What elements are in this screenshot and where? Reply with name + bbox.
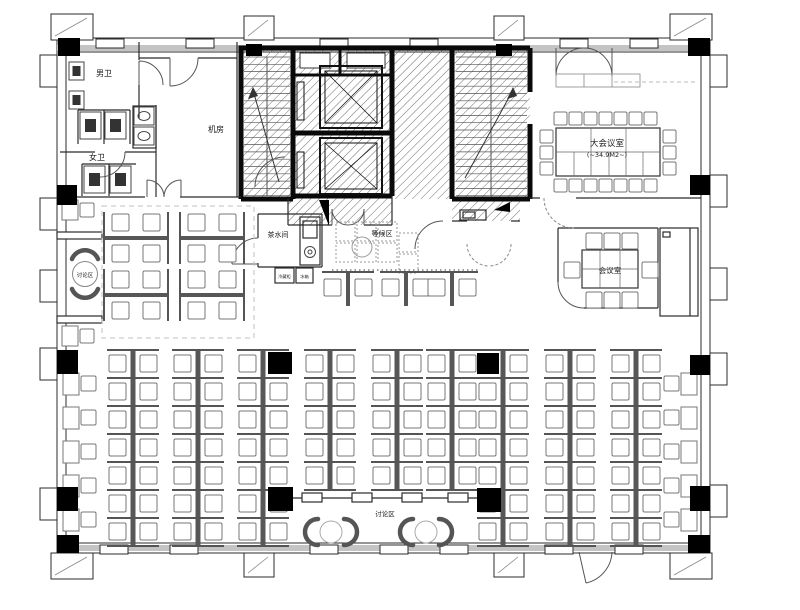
floor-plan-drawing: 男卫 女卫 机房 茶水间 等候区 讨论区 大会议室 (~34.9M2~) 会议室… — [0, 0, 800, 610]
round-table — [320, 521, 342, 543]
label-large-meeting-area: (~34.9M2~) — [587, 151, 627, 159]
door-vestibule-right — [415, 221, 443, 249]
desk-bench — [237, 350, 289, 546]
door-corridor-double-dashed — [467, 244, 511, 266]
column — [57, 350, 78, 374]
fan-chair — [344, 519, 357, 545]
workstation-cluster — [104, 212, 168, 264]
entry-mat — [556, 74, 640, 87]
column — [690, 175, 710, 195]
toilet — [84, 166, 105, 193]
column — [477, 488, 501, 512]
wall-desk — [63, 441, 96, 463]
wall-desk — [63, 373, 96, 395]
column — [268, 487, 293, 511]
column — [477, 353, 499, 374]
core-hatch — [241, 48, 530, 199]
column — [57, 185, 77, 205]
desk-bench-small — [322, 272, 374, 306]
column — [688, 535, 710, 553]
round-table — [415, 521, 437, 543]
fan-chair — [439, 519, 452, 545]
label-large-meeting-room: 大会议室 — [590, 138, 625, 149]
wall-desk — [63, 509, 96, 531]
wall-desk — [664, 509, 697, 531]
desk-bench — [304, 350, 356, 490]
tea-stove — [305, 247, 316, 258]
column — [690, 486, 710, 511]
waiting-round-table — [352, 237, 372, 257]
urinal — [69, 91, 84, 109]
label-meeting-room: 会议室 — [599, 265, 622, 275]
desk-bench — [544, 350, 596, 546]
column — [496, 44, 512, 56]
desk-bench-small — [426, 272, 478, 306]
label-mens-room: 男卫 — [96, 69, 112, 78]
column — [690, 355, 710, 375]
column — [57, 487, 78, 511]
sink — [134, 127, 154, 145]
lounge-bottom-discussion — [305, 519, 452, 545]
door-machine-room-north — [170, 58, 198, 86]
sink — [134, 107, 154, 125]
label-tea-room: 茶水间 — [268, 230, 289, 239]
label-womens-room: 女卫 — [89, 152, 105, 162]
fan-chair — [400, 519, 413, 545]
door-meeting-room — [558, 282, 584, 308]
fan-chair — [72, 289, 98, 298]
label-discussion-bottom: 讨论区 — [375, 509, 395, 518]
column — [268, 352, 292, 374]
wall-desk — [664, 441, 697, 463]
workstation-cluster — [180, 269, 244, 321]
door-exit-south — [579, 552, 612, 583]
label-waiting-area: 等候区 — [372, 229, 393, 238]
toilet — [80, 112, 101, 139]
column — [246, 44, 262, 56]
desk-bench — [172, 350, 224, 546]
toilet — [110, 166, 131, 193]
floor-plan-canvas: 男卫 女卫 机房 茶水间 等候区 讨论区 大会议室 (~34.9M2~) 会议室… — [0, 0, 800, 610]
label-machine-room: 机房 — [208, 124, 224, 134]
label-fridge: 冷藏柜 — [278, 273, 291, 280]
desk-bench — [426, 350, 478, 490]
column — [57, 535, 79, 553]
label-icebox: 冰箱 — [300, 273, 308, 280]
workstation-cluster — [104, 269, 168, 321]
door-large-meeting-dashed — [544, 198, 574, 228]
wall-desk — [62, 326, 94, 346]
desk-bench-small — [380, 272, 432, 306]
desk-bench — [610, 350, 662, 546]
fan-chair — [72, 250, 98, 259]
column — [58, 38, 80, 56]
fan-chair — [305, 519, 318, 545]
door-machine-room-south — [147, 180, 181, 197]
workstation-cluster — [180, 212, 244, 264]
wall-desk — [664, 373, 697, 395]
wall-desk — [664, 407, 697, 429]
stair-elevator-core — [241, 48, 530, 226]
desk-bench — [371, 350, 423, 490]
desk-bench — [107, 350, 159, 546]
door-mens-room — [139, 61, 163, 85]
toilet — [105, 112, 126, 139]
urinal — [69, 62, 84, 80]
label-discussion-left: 讨论区 — [77, 271, 94, 279]
wall-desk — [63, 407, 96, 429]
column — [688, 38, 710, 56]
desk-bench — [477, 350, 529, 546]
